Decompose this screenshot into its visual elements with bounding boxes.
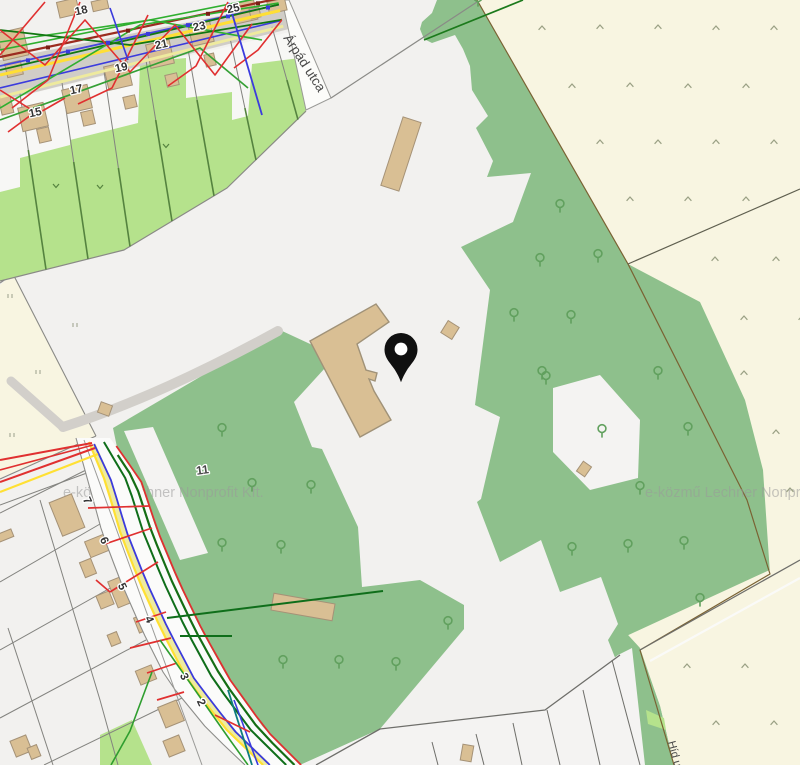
svg-text:e-közmű Lechner Nonprofit Kft.: e-közmű Lechner Nonprofit Kft. bbox=[645, 485, 800, 501]
svg-text:11: 11 bbox=[195, 462, 210, 478]
